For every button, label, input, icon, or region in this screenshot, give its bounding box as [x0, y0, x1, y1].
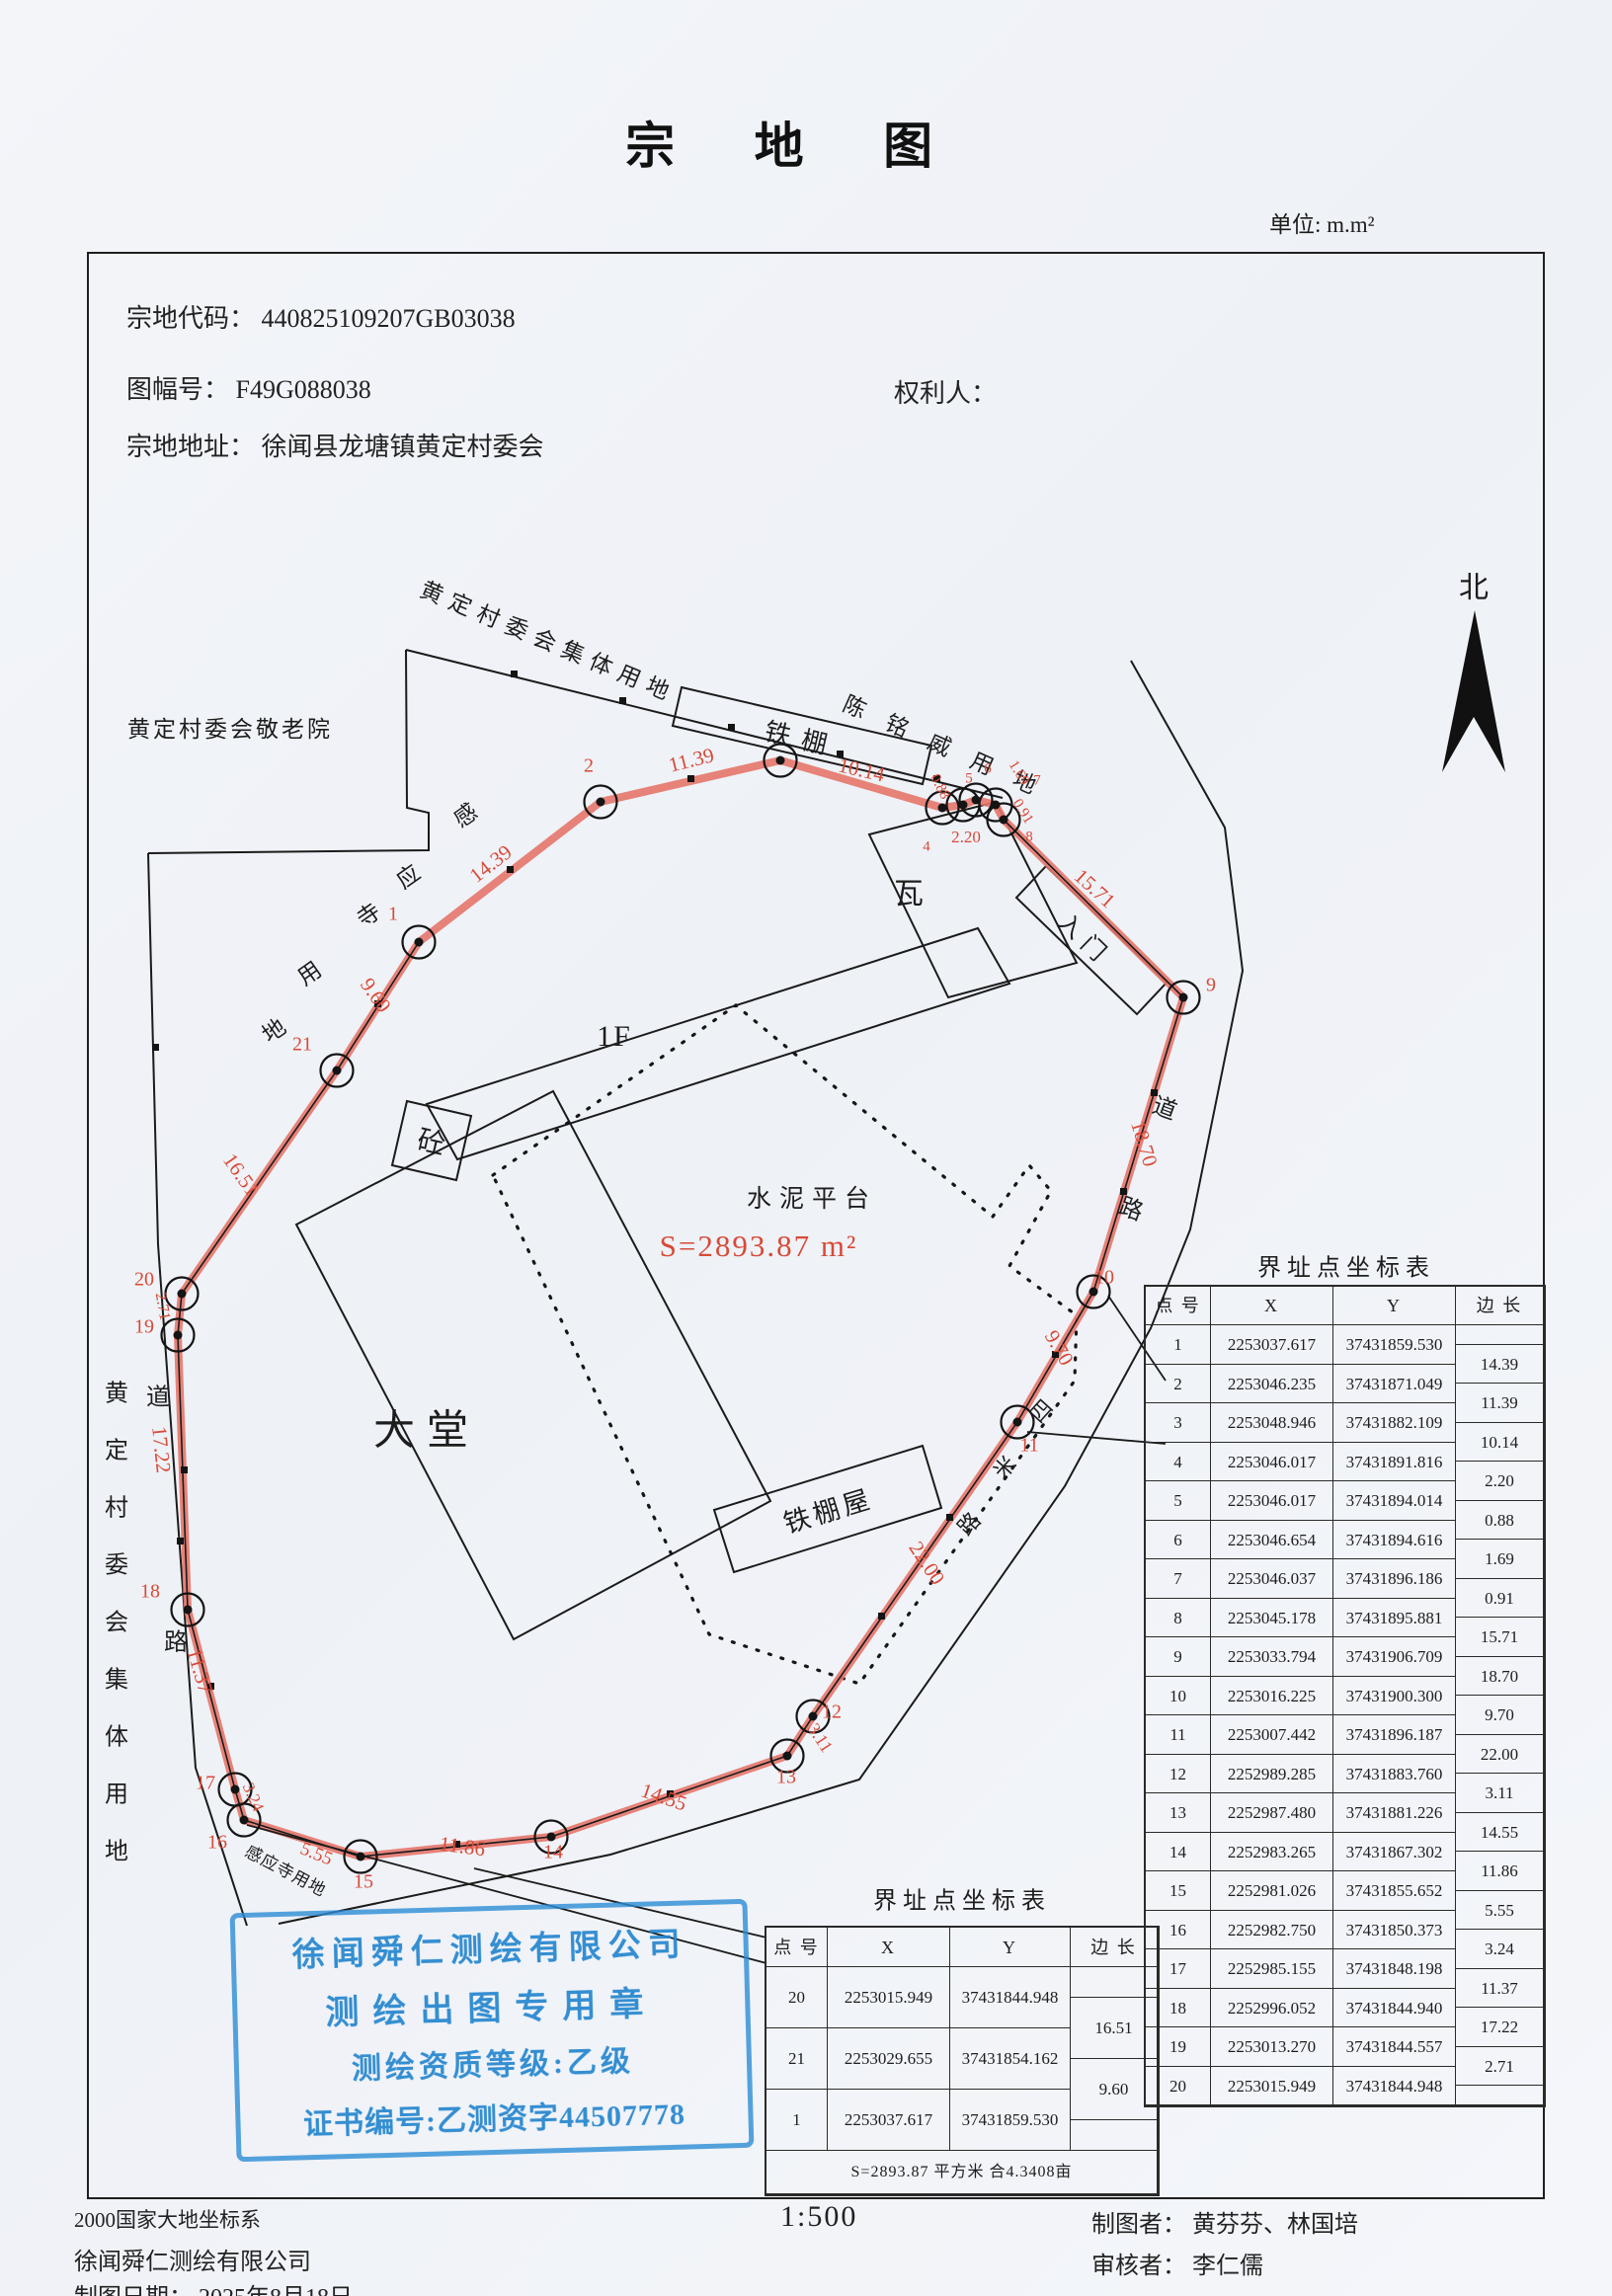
table-cell: 1	[1146, 1325, 1211, 1365]
table-cell: 37431844.557	[1333, 2027, 1456, 2067]
table-cell: 37431855.652	[1333, 1871, 1456, 1911]
map-label: 会	[105, 1603, 128, 1637]
point-number-label: 14	[543, 1842, 563, 1864]
point-number-label: 17	[196, 1773, 215, 1795]
point-number-label: 1	[388, 904, 398, 926]
edge-length-label: 14.39	[465, 840, 518, 889]
point-number-label: 5	[965, 771, 973, 788]
table-cell: 18.70	[1456, 1657, 1544, 1697]
table-cell: 37431871.049	[1333, 1365, 1456, 1404]
map-label: 大堂	[373, 1397, 480, 1458]
left-table-title: 界址点坐标表	[873, 1881, 1051, 1916]
table-cell: 3.11	[1456, 1774, 1544, 1813]
map-label: 水泥平台	[747, 1179, 877, 1215]
table-cell: 2.20	[1456, 1462, 1544, 1501]
edge-length-label: 11.39	[666, 743, 716, 778]
table-cell: 37431894.616	[1333, 1521, 1456, 1560]
edge-length-label: 10.14	[836, 753, 887, 788]
table-cell: 1.69	[1456, 1540, 1544, 1579]
table-cell: 15	[1146, 1871, 1211, 1911]
map-label: 定	[105, 1431, 128, 1465]
table-cell: 37431881.226	[1333, 1793, 1456, 1833]
table-cell: 2252982.750	[1211, 1911, 1333, 1950]
table-cell: 3	[1146, 1403, 1211, 1443]
footer-company: 徐闻舜仁测绘有限公司	[74, 2242, 311, 2276]
table-cell: 10	[1146, 1677, 1211, 1716]
edge-length-label: 2.20	[951, 828, 981, 847]
stamp-grade: 测绘资质等级:乙级	[242, 2033, 743, 2091]
table-cell: 2252985.155	[1211, 1949, 1333, 1989]
point-number-label: 13	[776, 1767, 796, 1789]
point-number-label: 21	[292, 1034, 312, 1057]
table-cell: 14.39	[1456, 1345, 1544, 1385]
table-cell: 8	[1146, 1599, 1211, 1638]
parcel-map-sheet: 宗 地 图 单位: m.m² 宗地代码： 440825109207GB03038…	[0, 0, 1612, 2296]
table-cell: 2.71	[1456, 2047, 1544, 2087]
table-cell: 37431894.014	[1333, 1481, 1456, 1521]
edge-length-label: 22.00	[904, 1537, 950, 1589]
table-cell: 2253033.794	[1211, 1637, 1333, 1677]
table-cell: 17.22	[1456, 2008, 1544, 2047]
table-cell: 9.60	[1071, 2059, 1158, 2120]
stamp-purpose: 测绘出图专用章	[241, 1974, 742, 2036]
edge-length-label: 0.88	[926, 771, 952, 802]
table-cell: 37431850.373	[1333, 1911, 1456, 1950]
edge-length-label: 14.55	[638, 1778, 690, 1816]
table-cell: 2253046.017	[1211, 1443, 1333, 1482]
table-cell: 2253037.617	[1211, 1325, 1333, 1365]
table-cell: 14	[1146, 1833, 1211, 1872]
map-label: 道	[1149, 1085, 1183, 1126]
table-cell: 2253045.178	[1211, 1599, 1333, 1638]
footer-reviewer: 审核者： 李仁儒	[1091, 2246, 1263, 2280]
edge-length-label: 3.24	[238, 1780, 268, 1814]
footer-drafter: 制图者： 黄芬芬、林国培	[1091, 2204, 1358, 2239]
map-label: 用	[289, 951, 327, 991]
table-cell: 9	[1146, 1637, 1211, 1677]
table-cell: 2253016.225	[1211, 1677, 1333, 1716]
table-cell: 12	[1146, 1755, 1211, 1794]
table-cell: 37431844.940	[1333, 1989, 1456, 2028]
area-label: S=2893.87 m²	[660, 1228, 858, 1264]
table-header-cell: Y	[1333, 1287, 1456, 1325]
table-cell	[1456, 2086, 1544, 2105]
edge-length-label: 9.60	[355, 974, 396, 1017]
point-number-label: 19	[134, 1316, 154, 1339]
map-label: 路	[1115, 1186, 1150, 1227]
edge-length-label: 2.71	[151, 1292, 174, 1322]
map-label: 地	[254, 1008, 291, 1049]
map-label: 四	[1021, 1391, 1060, 1429]
table-cell: 2253015.949	[1211, 2067, 1333, 2106]
table-cell: 37431882.109	[1333, 1403, 1456, 1443]
edge-length-label: 3.11	[803, 1719, 837, 1756]
table-cell: 15.71	[1456, 1618, 1544, 1657]
table-header-cell: 边 长	[1456, 1287, 1544, 1325]
table-cell: 37431883.760	[1333, 1755, 1456, 1794]
table-cell: 2252989.285	[1211, 1755, 1333, 1794]
table-footer-cell: S=2893.87 平方米 合4.3408亩	[766, 2151, 1158, 2194]
surveyor-stamp: 徐闻舜仁测绘有限公司 测绘出图专用章 测绘资质等级:乙级 证书编号:乙测资字44…	[230, 1899, 755, 2163]
edge-length-label: 11.86	[438, 1832, 486, 1861]
table-cell: 37431906.709	[1333, 1637, 1456, 1677]
table-cell: 2253046.037	[1211, 1559, 1333, 1599]
edge-length-label: 9.70	[1039, 1326, 1079, 1370]
footer-crs: 2000国家大地坐标系	[74, 2204, 261, 2234]
map-label: 入门	[1052, 904, 1121, 973]
table-cell: 37431848.198	[1333, 1949, 1456, 1989]
table-cell: 11.39	[1456, 1384, 1544, 1423]
table-cell: 6	[1146, 1521, 1211, 1560]
table-header-cell: X	[828, 1928, 950, 1967]
point-number-label: 10	[1094, 1267, 1114, 1290]
table-cell: 4	[1146, 1443, 1211, 1482]
map-label: 铁棚	[762, 711, 843, 763]
map-label: 黄	[105, 1374, 128, 1408]
table-cell: 2253048.946	[1211, 1403, 1333, 1443]
stamp-company: 徐闻舜仁测绘有限公司	[239, 1916, 740, 1977]
map-label: 用	[105, 1775, 128, 1809]
point-number-label: 11	[1019, 1435, 1038, 1458]
table-cell: 7	[1146, 1559, 1211, 1599]
table-cell: 2	[1146, 1365, 1211, 1404]
table-cell: 37431844.948	[950, 1967, 1071, 2028]
footer-scale: 1:500	[780, 2200, 857, 2234]
map-label: 黄定村委会敬老院	[127, 710, 333, 744]
point-number-label: 6	[984, 761, 992, 778]
map-label: 路	[949, 1504, 988, 1542]
table-header-cell: 点 号	[766, 1928, 828, 1967]
table-header-cell: 点 号	[1146, 1287, 1211, 1325]
table-cell	[1071, 2120, 1158, 2151]
point-number-label: 7	[1033, 773, 1041, 790]
table-cell: 1	[766, 2090, 828, 2151]
table-cell: 16.51	[1071, 1998, 1158, 2059]
map-label: 瓦	[894, 869, 924, 912]
table-cell: 0.91	[1456, 1579, 1544, 1619]
point-number-label: 8	[1025, 830, 1033, 846]
table-cell: 2252981.026	[1211, 1871, 1333, 1911]
table-cell: 37431844.948	[1333, 2067, 1456, 2106]
edge-length-label: 11.37	[182, 1645, 218, 1697]
point-number-label: 16	[207, 1832, 227, 1855]
point-number-label: 15	[354, 1871, 373, 1894]
table-cell: 2253007.442	[1211, 1715, 1333, 1755]
table-cell: 37431859.530	[950, 2090, 1071, 2151]
table-cell: 11.86	[1456, 1852, 1544, 1891]
map-label: 体	[105, 1717, 128, 1752]
map-label: 应	[388, 854, 426, 895]
map-label: 铁棚屋	[778, 1477, 877, 1541]
table-cell: 0.88	[1456, 1501, 1544, 1541]
table-cell: 22.00	[1456, 1735, 1544, 1775]
point-number-label: 20	[134, 1269, 154, 1292]
edge-length-label: 16.51	[217, 1148, 265, 1201]
table-cell: 13	[1146, 1793, 1211, 1833]
map-label: 感	[445, 793, 483, 833]
table-cell: 37431895.881	[1333, 1599, 1456, 1638]
table-cell: 5	[1146, 1481, 1211, 1521]
map-label: 集	[105, 1660, 128, 1695]
table-cell: 3.24	[1456, 1930, 1544, 1969]
table-header-cell: 边 长	[1071, 1928, 1158, 1967]
table-cell: 37431896.186	[1333, 1559, 1456, 1599]
point-number-label: 9	[1206, 975, 1216, 997]
table-cell: 10.14	[1456, 1423, 1544, 1463]
table-cell: 2253013.270	[1211, 2027, 1333, 2067]
point-number-label: 2	[584, 755, 594, 778]
table-header-cell: Y	[950, 1928, 1071, 1967]
table-cell: 2253046.017	[1211, 1481, 1333, 1521]
table-cell: 2252987.480	[1211, 1793, 1333, 1833]
table-cell: 14.55	[1456, 1813, 1544, 1853]
map-label: 地	[105, 1832, 128, 1866]
table-cell: 2253015.949	[828, 1967, 950, 2028]
footer-date: 制图日期： 2025年8月18日	[74, 2277, 353, 2296]
table-cell: 37431900.300	[1333, 1677, 1456, 1716]
point-number-label: 12	[822, 1702, 842, 1724]
table-cell: 9.70	[1456, 1696, 1544, 1735]
map-label: 1F	[597, 1020, 632, 1054]
edge-length-label: 18.70	[1125, 1118, 1163, 1169]
table-cell: 2253037.617	[828, 2090, 950, 2151]
point-number-label: 18	[140, 1581, 160, 1604]
table-cell: 2252983.265	[1211, 1833, 1333, 1872]
right-table-title: 界址点坐标表	[1257, 1248, 1435, 1283]
table-cell	[1456, 1325, 1544, 1345]
stamp-certificate: 证书编号:乙测资字44507778	[244, 2088, 745, 2145]
map-label: 道	[146, 1378, 170, 1412]
table-cell: 37431896.187	[1333, 1715, 1456, 1755]
table-cell: 2253046.235	[1211, 1365, 1333, 1404]
table-cell: 2252996.052	[1211, 1989, 1333, 2028]
map-label: 委	[105, 1545, 128, 1580]
table-cell: 21	[766, 2028, 828, 2090]
map-label: 寺	[349, 893, 386, 933]
table-cell: 37431854.162	[950, 2028, 1071, 2090]
edge-length-label: 17.22	[146, 1425, 176, 1474]
point-number-label: 4	[923, 839, 930, 856]
table-cell: 11	[1146, 1715, 1211, 1755]
table-cell: 37431867.302	[1333, 1833, 1456, 1872]
map-label: 砼	[414, 1118, 449, 1162]
map-label: 黄定村委会集体用地	[416, 571, 683, 709]
map-label: 村	[105, 1488, 128, 1523]
table-cell: 2253029.655	[828, 2028, 950, 2090]
table-cell: 37431891.816	[1333, 1443, 1456, 1482]
table-header-cell: X	[1211, 1287, 1333, 1325]
map-label: 米	[985, 1448, 1023, 1485]
table-cell: 11.37	[1456, 1969, 1544, 2009]
table-cell: 5.55	[1456, 1891, 1544, 1931]
table-cell: 20	[766, 1967, 828, 2028]
table-cell: 2253046.654	[1211, 1521, 1333, 1560]
table-cell	[1071, 1967, 1158, 1998]
table-cell: 37431859.530	[1333, 1325, 1456, 1365]
